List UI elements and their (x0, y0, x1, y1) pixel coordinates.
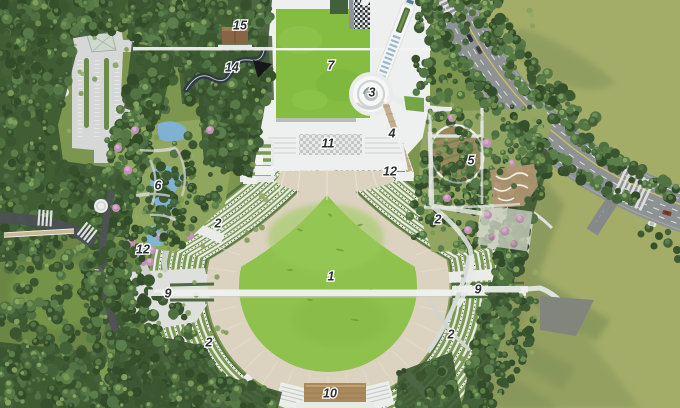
svg-text:2: 2 (214, 217, 222, 231)
svg-text:1: 1 (328, 270, 335, 284)
svg-text:2: 2 (447, 328, 455, 342)
svg-text:6: 6 (155, 179, 163, 193)
svg-text:9: 9 (165, 287, 172, 301)
svg-text:14: 14 (225, 61, 239, 75)
svg-text:12: 12 (136, 243, 150, 257)
svg-text:7: 7 (328, 59, 336, 73)
svg-text:11: 11 (322, 137, 335, 151)
svg-text:5: 5 (468, 154, 476, 168)
svg-text:10: 10 (323, 387, 337, 401)
svg-text:2: 2 (205, 336, 213, 350)
svg-text:3: 3 (369, 86, 376, 100)
svg-text:12: 12 (383, 165, 397, 179)
svg-text:2: 2 (434, 213, 442, 227)
svg-text:9: 9 (475, 283, 482, 297)
svg-text:15: 15 (233, 19, 248, 33)
svg-text:4: 4 (388, 127, 396, 141)
